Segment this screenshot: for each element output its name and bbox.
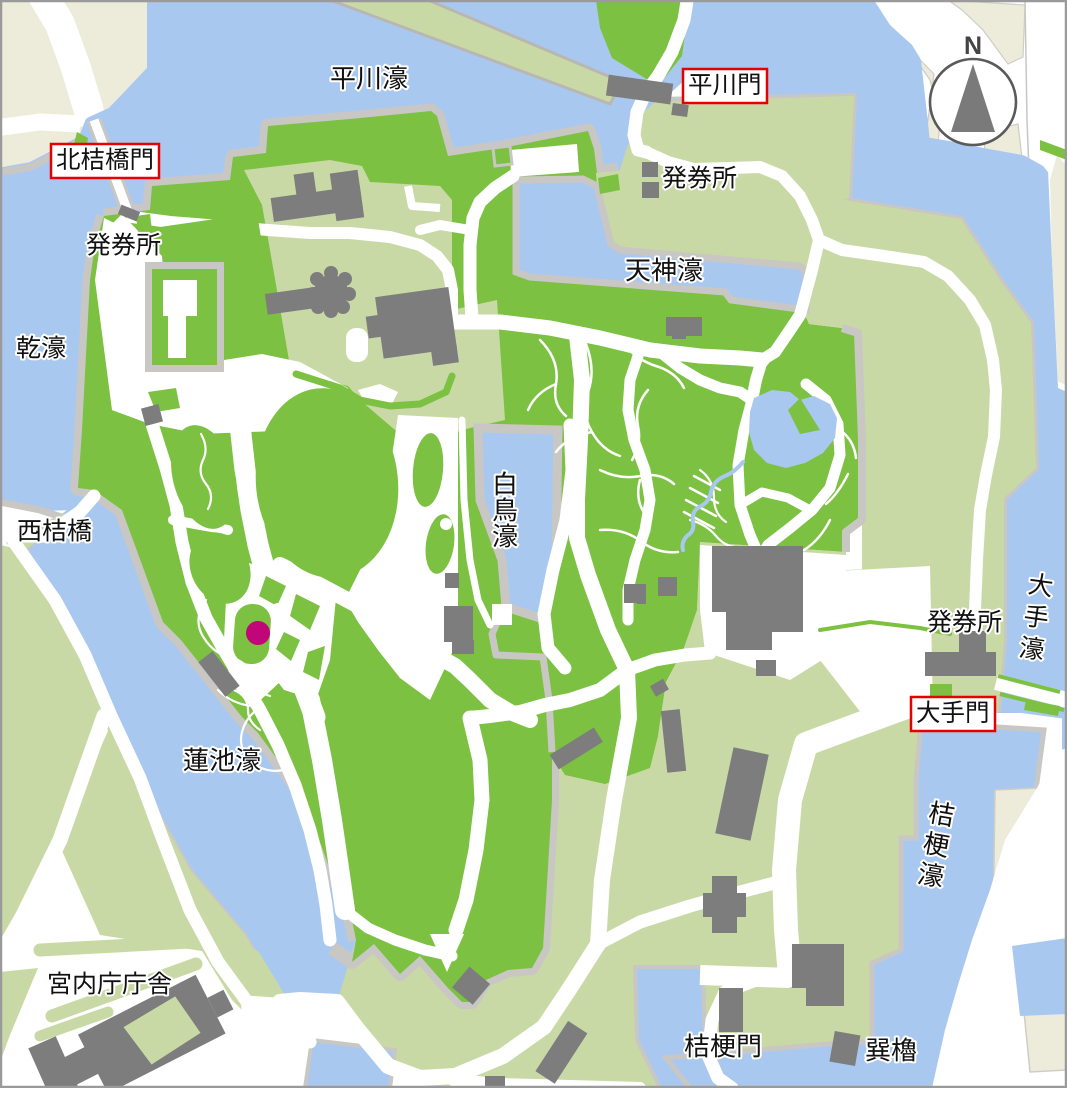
svg-text:N: N [964,32,982,60]
